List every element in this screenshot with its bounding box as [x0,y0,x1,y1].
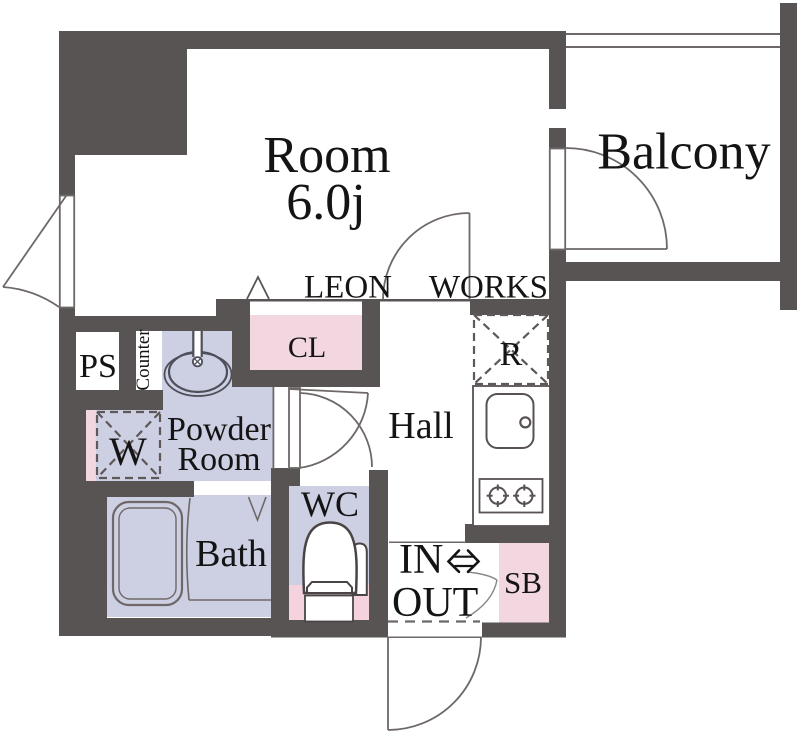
svg-text:PS: PS [79,348,117,385]
svg-text:IN: IN [399,537,443,583]
svg-text:SB: SB [504,565,542,600]
svg-text:6.0j: 6.0j [286,174,365,231]
svg-text:OUT: OUT [392,580,478,626]
svg-text:Room: Room [177,441,260,478]
svg-text:Counter: Counter [133,329,154,391]
svg-text:Hall: Hall [388,405,453,447]
svg-text:CL: CL [288,331,326,364]
svg-text:WORKS: WORKS [429,270,548,306]
svg-text:Bath: Bath [195,533,267,575]
svg-text:W: W [109,429,147,474]
svg-text:R: R [500,336,523,373]
svg-text:WC: WC [301,484,359,524]
svg-text:LEON: LEON [304,270,392,306]
svg-text:Balcony: Balcony [597,124,770,181]
